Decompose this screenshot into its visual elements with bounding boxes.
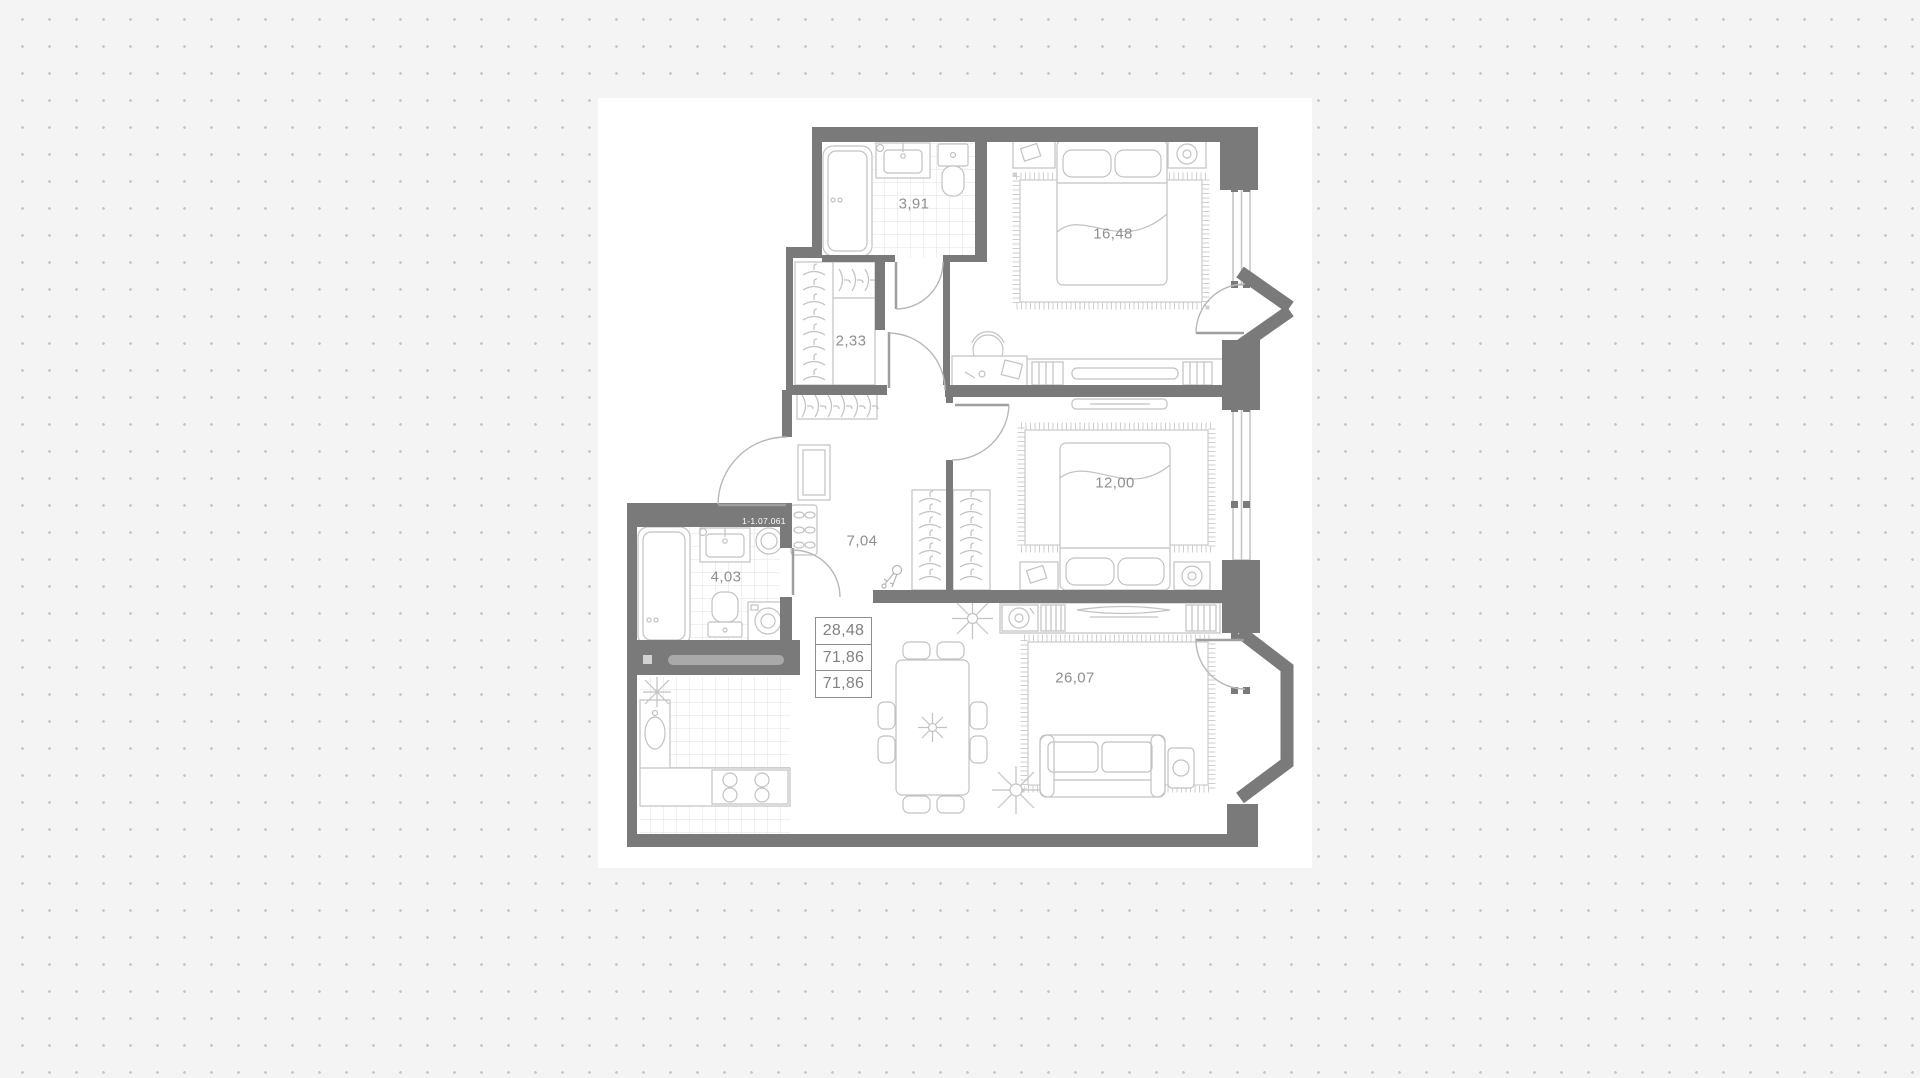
area-table-row-1: 28,48 [816, 618, 871, 645]
bathtub-icon [823, 146, 872, 256]
side-table [1168, 748, 1194, 788]
coat-rack [797, 393, 878, 419]
nightstand-left [1013, 140, 1055, 168]
apartment-number-label: 1-1.07.061 [742, 516, 786, 526]
floor-plan-page: 3,91 2,33 16,48 12,00 7,04 4,03 26,07 1-… [0, 0, 1920, 1078]
bedroom2-shelf [1072, 399, 1167, 409]
kitchen-light-icon [643, 677, 671, 707]
area-summary-table: 28,48 71,86 71,86 [815, 617, 872, 698]
plant-icon [952, 598, 993, 639]
door-arc-hall [889, 333, 945, 390]
nightstand-right [1168, 140, 1206, 168]
room-area-label-wardrobe: 2,33 [836, 333, 867, 350]
room-area-label-bedroom-second: 12,00 [1095, 475, 1135, 492]
water-heater-icon [756, 528, 782, 554]
door-arc-bathroom [896, 262, 943, 309]
room-area-label-living-kitchen: 26,07 [1055, 670, 1095, 687]
bathtub2-icon [638, 527, 690, 645]
plant2-icon [992, 766, 1040, 814]
console-mirror [798, 445, 830, 500]
door-arc-entrance [718, 437, 787, 504]
keys-icon [882, 566, 902, 589]
sofa [1040, 735, 1165, 797]
door-arc-bathroom2 [793, 550, 840, 597]
area-table-row-3: 71,86 [816, 671, 871, 697]
bay-top [1240, 272, 1290, 346]
toilet2-icon [708, 592, 742, 637]
room-area-label-bathroom: 3,91 [899, 196, 930, 213]
bed-double [1057, 140, 1167, 285]
bay-bottom [1240, 632, 1287, 798]
desk-and-chair [952, 332, 1027, 387]
nightstand2-right [1174, 562, 1210, 590]
floor-plan-drawing [0, 0, 1920, 1078]
nightstand2-left [1020, 562, 1058, 590]
wardrobe-233 [795, 262, 876, 385]
door-arc-balcony-top [1196, 284, 1245, 333]
area-table-row-2: 71,86 [816, 645, 871, 672]
shoe-rack [791, 505, 817, 555]
sink2-icon [700, 528, 751, 562]
stove-icon [712, 770, 788, 804]
room-area-label-corridor: 7,04 [847, 533, 878, 550]
bedroom1-shelf-row [1020, 359, 1223, 387]
sink-icon [876, 143, 930, 178]
bed-double-2 [1060, 443, 1170, 590]
room-area-label-bathroom-second: 4,03 [711, 569, 742, 586]
tv-console [1000, 603, 1220, 633]
table-plant-icon [918, 713, 947, 742]
room-area-label-bedroom-main: 16,48 [1093, 226, 1133, 243]
door-arc-bedroom2 [952, 405, 1009, 460]
